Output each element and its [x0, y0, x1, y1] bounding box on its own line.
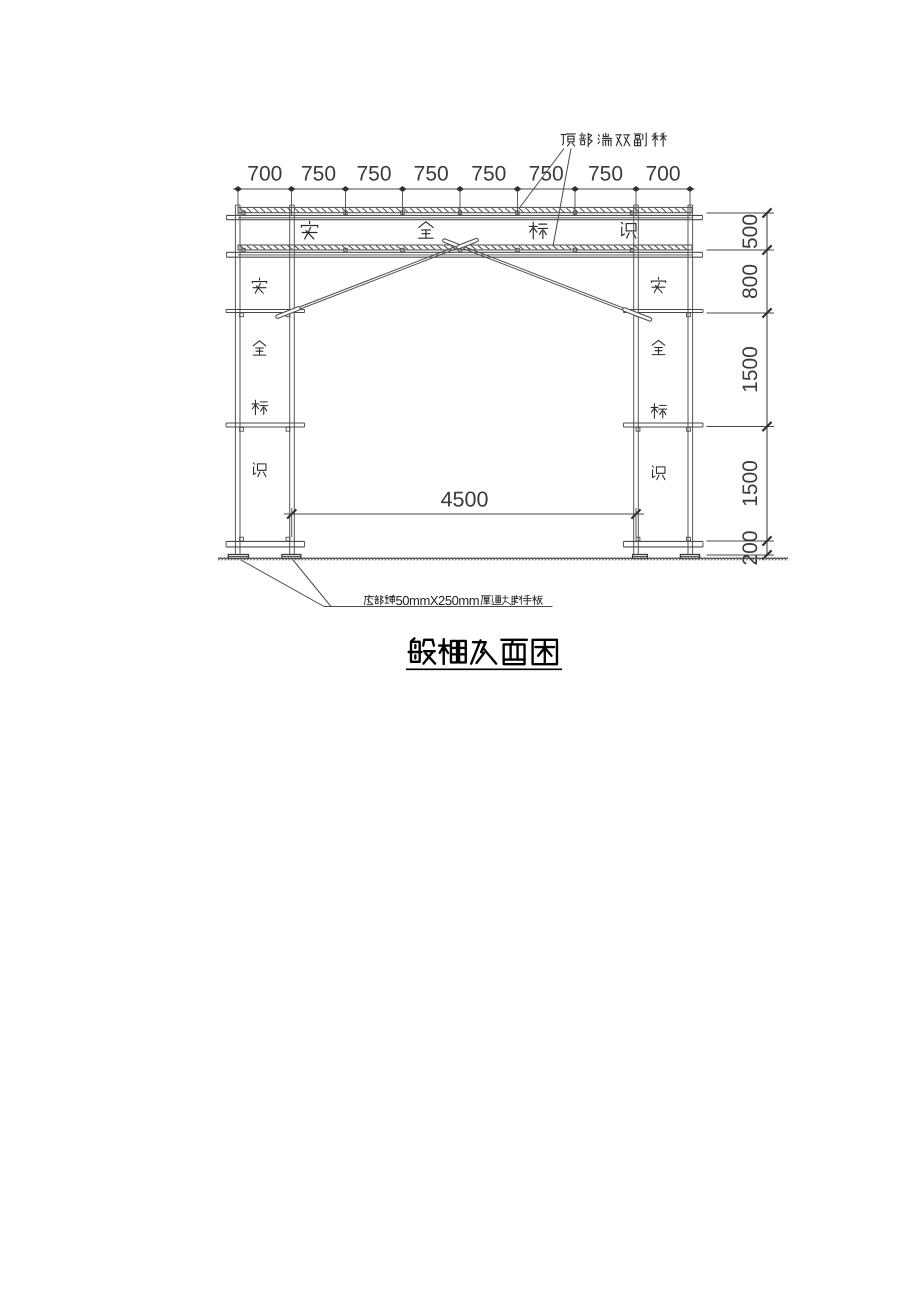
svg-text:1500: 1500	[739, 460, 762, 507]
svg-text:700: 700	[645, 163, 680, 186]
svg-text:750: 750	[588, 163, 623, 186]
svg-text:750: 750	[356, 163, 391, 186]
svg-text:750: 750	[471, 163, 506, 186]
svg-text:800: 800	[739, 264, 762, 299]
svg-text:750: 750	[414, 163, 449, 186]
svg-text:750: 750	[529, 163, 564, 186]
svg-text:1500: 1500	[739, 346, 762, 393]
svg-text:4500: 4500	[441, 488, 489, 512]
svg-text:50mmX250mm: 50mmX250mm	[396, 593, 480, 608]
svg-text:750: 750	[301, 163, 336, 186]
svg-text:500: 500	[739, 214, 762, 249]
svg-text:700: 700	[247, 163, 282, 186]
